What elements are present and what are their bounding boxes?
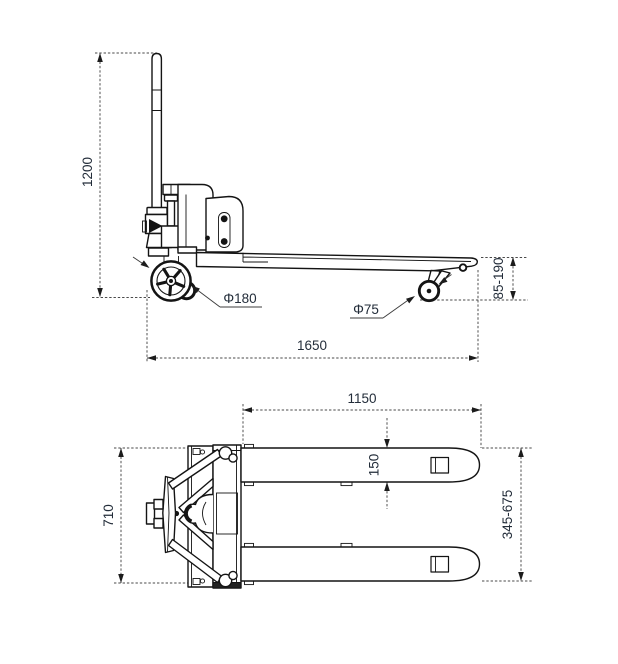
- piston-rod: [168, 201, 175, 226]
- drawing-svg: 1200 1650 85-190 Φ180 Φ75: [0, 0, 618, 664]
- fork-side: [197, 253, 478, 271]
- dim-overall-length: 1650: [297, 338, 327, 353]
- fork-upper-hole: [431, 458, 449, 474]
- dim-overall-width: 710: [101, 504, 116, 527]
- dim-fork-width: 150: [367, 454, 382, 477]
- dim-fork-height-range: 85-190: [491, 257, 506, 299]
- dim-steer-wheel-diameter: Φ180: [223, 291, 256, 306]
- dim-load-roller-diameter: Φ75: [353, 302, 379, 317]
- dim-fork-span-range: 345-675: [500, 490, 515, 540]
- fork-tip-pin: [460, 264, 467, 271]
- pallet-truck-technical-drawing: 1200 1650 85-190 Φ180 Φ75: [0, 0, 618, 664]
- handle-clamp: [147, 208, 167, 215]
- dim-fork-length: 1150: [347, 391, 376, 406]
- side-view: 1200 1650 85-190 Φ180 Φ75: [80, 53, 528, 362]
- piston-cap: [165, 195, 178, 201]
- top-view-machine: [147, 444, 480, 588]
- side-view-machine: [143, 54, 478, 301]
- top-view: 1150 150 710 345-675: [101, 391, 533, 588]
- dim-overall-height: 1200: [80, 157, 95, 187]
- wheel-fork-bar: [149, 248, 169, 256]
- fork-lower-hole: [431, 557, 449, 573]
- tiller-handle: [152, 54, 161, 214]
- steer-wheel: [151, 261, 190, 300]
